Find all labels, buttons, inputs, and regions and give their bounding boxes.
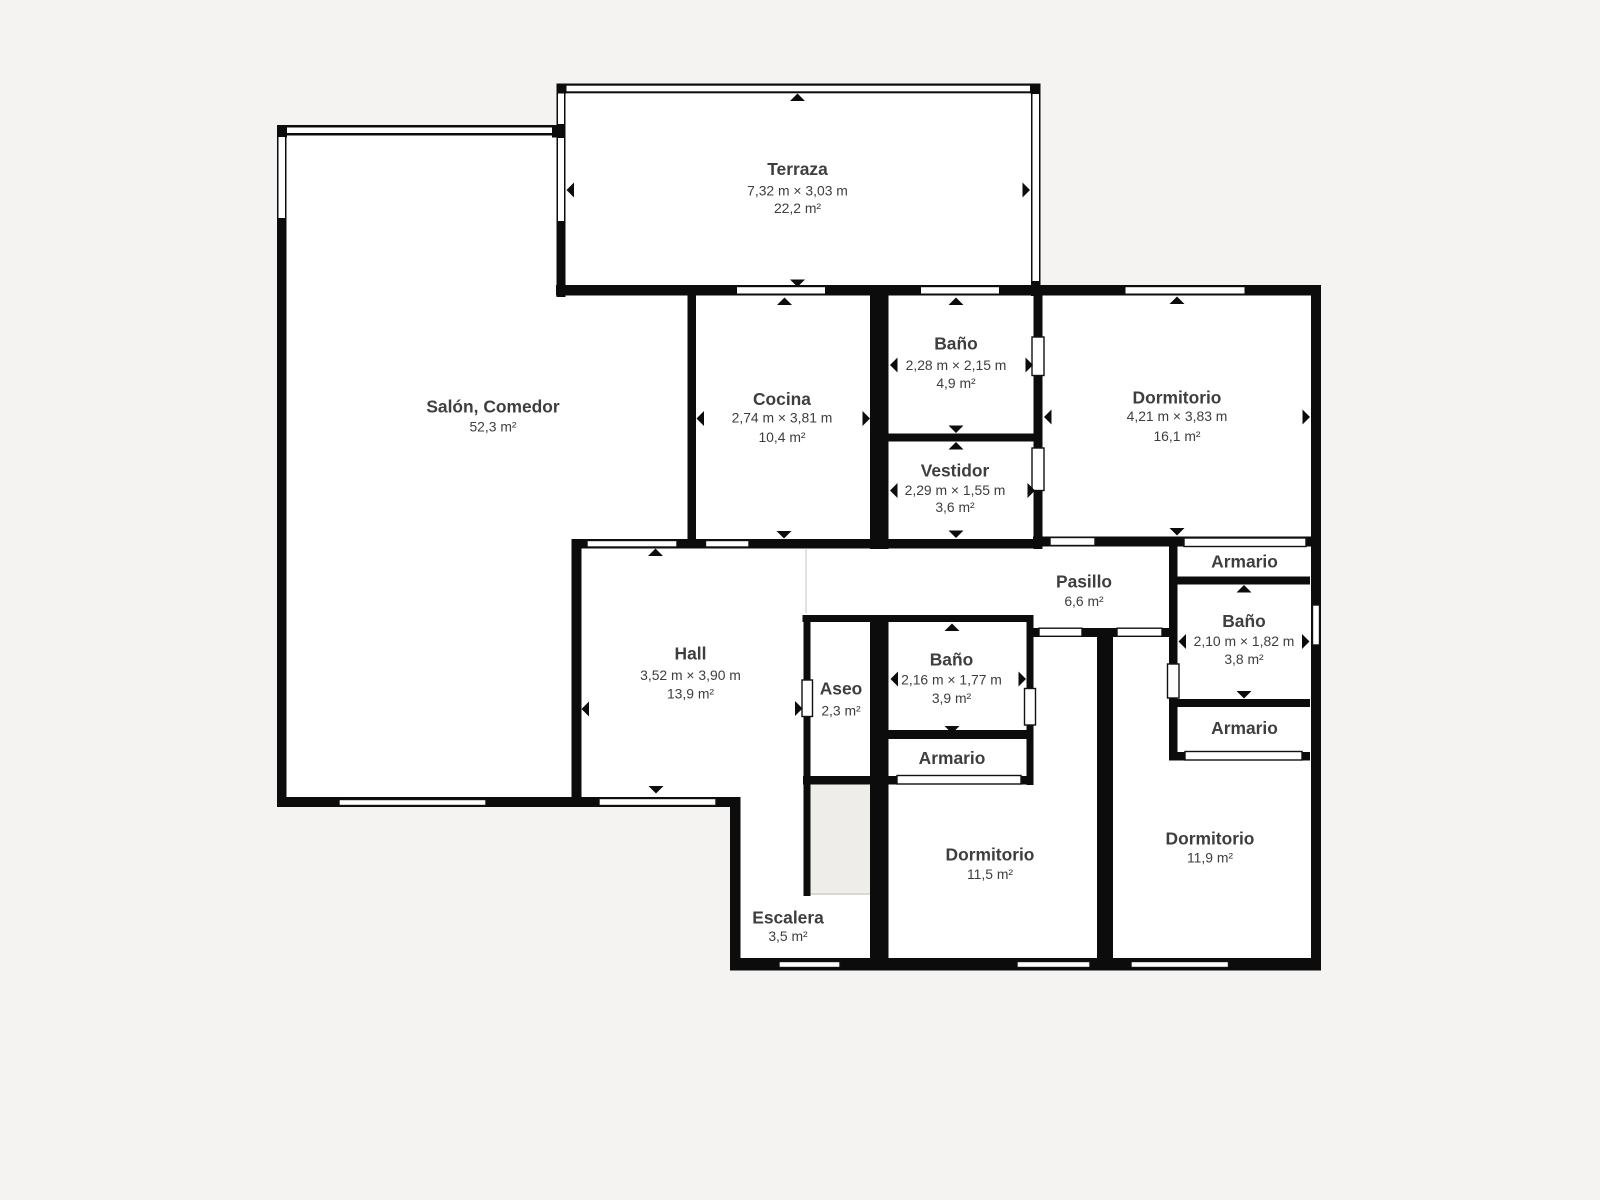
svg-text:Dormitorio: Dormitorio (946, 845, 1035, 865)
svg-text:3,9 m²: 3,9 m² (932, 690, 972, 706)
svg-text:Aseo: Aseo (820, 679, 863, 699)
svg-text:3,8 m²: 3,8 m² (1224, 651, 1264, 667)
svg-text:7,32 m × 3,03 m: 7,32 m × 3,03 m (747, 183, 848, 199)
svg-text:Armario: Armario (1211, 718, 1278, 738)
svg-text:Pasillo: Pasillo (1056, 572, 1112, 592)
svg-text:Hall: Hall (675, 644, 707, 664)
svg-text:3,5 m²: 3,5 m² (768, 928, 808, 944)
svg-text:2,3 m²: 2,3 m² (821, 703, 861, 719)
svg-text:2,10 m × 1,82 m: 2,10 m × 1,82 m (1194, 633, 1295, 649)
svg-text:6,6 m²: 6,6 m² (1064, 593, 1104, 609)
svg-text:3,52 m × 3,90 m: 3,52 m × 3,90 m (640, 667, 741, 683)
svg-text:2,16 m × 1,77 m: 2,16 m × 1,77 m (901, 672, 1002, 688)
svg-text:Baño: Baño (1222, 611, 1265, 631)
svg-text:Baño: Baño (934, 334, 977, 354)
svg-text:Escalera: Escalera (752, 908, 824, 928)
svg-text:22,2 m²: 22,2 m² (774, 200, 821, 216)
svg-text:13,9 m²: 13,9 m² (667, 686, 714, 702)
svg-text:Armario: Armario (1211, 552, 1278, 572)
svg-text:Armario: Armario (919, 748, 986, 768)
svg-text:Terraza: Terraza (767, 159, 828, 179)
svg-text:2,74 m × 3,81 m: 2,74 m × 3,81 m (732, 410, 833, 426)
svg-text:2,28 m × 2,15 m: 2,28 m × 2,15 m (906, 357, 1007, 373)
svg-text:4,9 m²: 4,9 m² (936, 375, 976, 391)
svg-text:Vestidor: Vestidor (921, 461, 990, 481)
svg-text:Dormitorio: Dormitorio (1133, 388, 1222, 408)
svg-text:2,29 m × 1,55 m: 2,29 m × 1,55 m (905, 482, 1006, 498)
svg-text:52,3 m²: 52,3 m² (469, 419, 516, 435)
svg-text:Dormitorio: Dormitorio (1166, 829, 1255, 849)
svg-text:Cocina: Cocina (753, 389, 811, 409)
svg-text:10,4 m²: 10,4 m² (758, 429, 805, 445)
svg-text:16,1 m²: 16,1 m² (1153, 428, 1200, 444)
svg-text:11,5 m²: 11,5 m² (967, 866, 1013, 882)
svg-text:4,21 m × 3,83 m: 4,21 m × 3,83 m (1127, 408, 1228, 424)
svg-text:Salón, Comedor: Salón, Comedor (426, 397, 560, 417)
svg-text:Baño: Baño (930, 650, 973, 670)
svg-text:11,9 m²: 11,9 m² (1187, 850, 1233, 866)
svg-text:3,6 m²: 3,6 m² (935, 499, 975, 515)
